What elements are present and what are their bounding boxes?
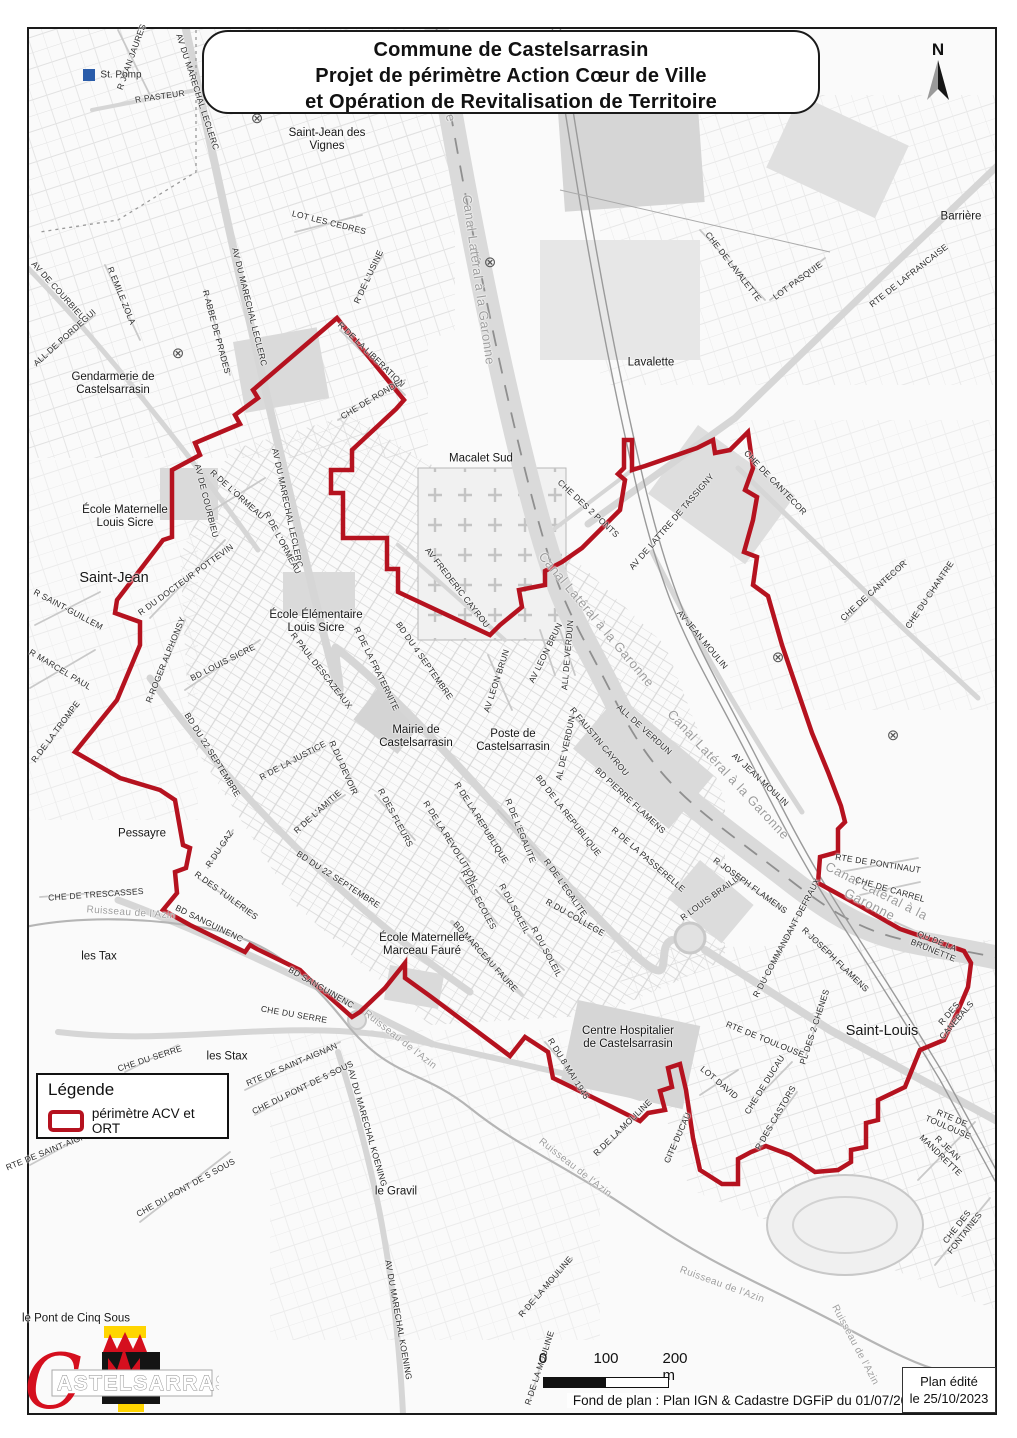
title-box: Commune de Castelsarrasin Projet de péri…: [202, 30, 820, 114]
north-label: N: [915, 40, 961, 60]
title-line-3: et Opération de Revitalisation de Territ…: [204, 89, 818, 115]
north-needle-icon: [924, 60, 952, 102]
scale-tick-0: 0: [539, 1350, 547, 1367]
roundabout: [675, 923, 705, 953]
basemap: [0, 0, 1017, 1438]
legend-box: Légende périmètre ACV et ORT: [36, 1073, 229, 1139]
castelsarrasin-logo: C ASTELSARRASIN: [24, 1312, 219, 1420]
legend-item: périmètre ACV et ORT: [48, 1106, 217, 1136]
legend-item-label: périmètre ACV et ORT: [92, 1106, 217, 1136]
north-arrow: N: [915, 40, 961, 107]
edition-line-2: le 25/10/2023: [903, 1390, 995, 1407]
title-line-1: Commune de Castelsarrasin: [204, 37, 818, 63]
basemap-credit: Fond de plan : Plan IGN & Cadastre DGFiP…: [567, 1393, 929, 1408]
scale-tick-100: 100: [593, 1350, 618, 1367]
title-line-2: Projet de périmètre Action Cœur de Ville: [204, 63, 818, 89]
scale-bar: 0 100 200 m: [535, 1350, 695, 1396]
perimeter-swatch-icon: [48, 1110, 84, 1132]
map-content: [0, 0, 1017, 1438]
legend-title: Légende: [48, 1080, 217, 1100]
st-pomp-icon: [83, 69, 95, 81]
edition-box: Plan édité le 25/10/2023: [902, 1367, 996, 1413]
edition-line-1: Plan édité: [903, 1373, 995, 1390]
logo-name: ASTELSARRASIN: [57, 1372, 219, 1395]
scale-bar-graphic: [543, 1377, 669, 1388]
map-page: R JEAN JAURESR PASTEURAV DU MARECHAL LEC…: [0, 0, 1017, 1438]
